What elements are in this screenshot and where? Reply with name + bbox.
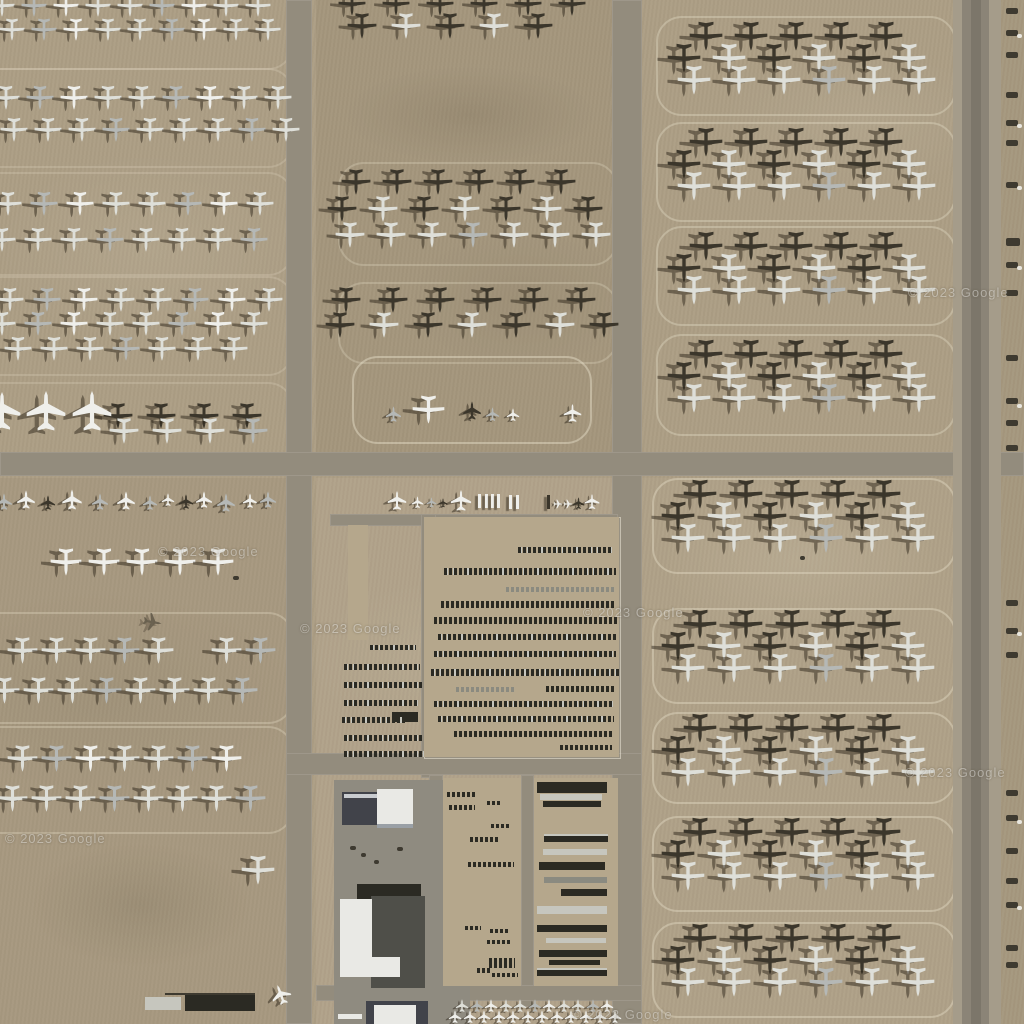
storage-row [454,731,614,737]
structure [539,862,605,870]
aircraft [506,408,520,422]
aircraft [61,489,83,511]
aircraft [230,82,258,110]
map-attribution-watermark: © 2023 Google [572,1007,673,1022]
aircraft [767,61,801,95]
structure [338,1014,362,1019]
structure [549,960,600,965]
aircraft [901,963,935,997]
aircraft [0,114,28,142]
aircraft [671,519,705,553]
aircraft [385,406,402,423]
aircraft [75,741,106,772]
aircraft [159,673,190,704]
aircraft [195,414,225,444]
aircraft [0,82,20,110]
aircraft [204,224,232,252]
aircraft [387,491,407,511]
aircraft [763,963,797,997]
aircraft [435,9,465,39]
aircraft [210,188,238,216]
aircraft [722,61,756,95]
aircraft [240,308,268,336]
structure [145,997,181,1010]
aircraft [535,1010,549,1024]
aircraft [50,544,82,576]
aircraft [195,491,213,509]
ground-object [1006,355,1018,361]
helicopter [516,495,519,509]
aircraft [242,493,258,509]
aircraft [563,404,582,423]
aircraft [133,781,164,812]
aircraft [211,633,242,664]
aircraft [152,414,182,444]
aircraft-body [0,392,20,430]
structure [374,1005,416,1024]
aircraft [127,15,153,41]
aircraft [7,741,38,772]
aircraft [95,15,121,41]
aircraft [902,167,936,201]
aircraft [523,9,553,39]
aircraft [763,753,797,787]
aircraft [812,271,846,305]
aircraft [902,61,936,95]
aircraft [0,673,20,704]
aircraft [722,379,756,413]
aircraft-body [585,494,600,509]
aircraft [99,781,130,812]
structure [561,889,607,896]
road [971,0,981,1024]
ground-object [1006,945,1018,951]
helicopter [478,494,481,508]
aircraft [23,673,54,704]
aircraft [270,984,292,1006]
aircraft [132,308,160,336]
aircraft [412,391,445,424]
aircraft [492,1010,506,1024]
storage-row [456,687,514,692]
aircraft [63,15,89,41]
structure [537,906,607,914]
map-attribution-watermark: © 2023 Google [158,544,259,559]
aircraft [238,414,268,444]
aircraft [0,224,16,252]
aircraft [191,15,217,41]
aircraft [809,519,843,553]
aircraft [272,114,300,142]
aircraft [589,308,619,338]
storage-row [344,682,422,688]
aircraft [40,333,68,361]
aircraft [235,781,266,812]
aircraft [369,308,399,338]
aircraft-body [451,490,471,511]
aircraft [245,633,276,664]
ground-object [1017,906,1022,910]
aircraft [763,857,797,891]
aircraft [521,1010,535,1024]
structure [537,925,607,932]
ground-object [1006,238,1020,246]
ground-object [374,860,379,864]
aircraft [857,379,891,413]
aircraft [462,401,482,421]
aircraft [671,857,705,891]
taxiway-outline [352,356,592,444]
aircraft [96,308,124,336]
aircraft [505,165,535,195]
aircraft [857,61,891,95]
aircraft [413,308,443,338]
aircraft [60,224,88,252]
aircraft [901,649,935,683]
aircraft-body [73,391,112,430]
aircraft [857,271,891,305]
structure [377,824,413,828]
storage-row [560,745,612,750]
helicopter [485,494,488,508]
aircraft [184,333,212,361]
aircraft [457,308,487,338]
aircraft [65,781,96,812]
road [286,0,312,1024]
aircraft [0,781,28,812]
ground-object [1006,140,1018,146]
aircraft [809,857,843,891]
aircraft [71,391,113,433]
aircraft [763,649,797,683]
aircraft [0,188,22,216]
structure [377,789,413,828]
aircraft [717,753,751,787]
aircraft [671,649,705,683]
aircraft [60,82,88,110]
structure [543,801,601,807]
aircraft [677,167,711,201]
aircraft [91,673,122,704]
aircraft [125,673,156,704]
aircraft [167,781,198,812]
aircraft [196,82,224,110]
map-attribution-watermark: © 2023 Google [5,831,106,846]
aircraft [16,490,36,510]
aircraft [161,493,175,507]
aircraft [4,333,32,361]
ground-object [1017,124,1022,128]
aircraft [677,61,711,95]
aircraft [677,271,711,305]
aircraft [102,114,130,142]
aircraft [857,167,891,201]
aircraft [581,218,611,248]
aircraft [722,271,756,305]
aircraft [812,167,846,201]
aircraft-body [388,491,406,510]
aircraft [809,649,843,683]
aircraft [902,379,936,413]
aircraft [31,15,57,41]
aircraft [238,114,266,142]
aircraft [246,188,274,216]
aircraft [477,1010,491,1024]
storage-row [438,634,616,640]
aircraft [558,0,586,16]
aircraft [41,633,72,664]
aircraft [211,741,242,772]
aircraft [855,963,889,997]
storage-row [477,968,491,973]
aircraft [450,490,472,512]
helicopter [547,495,550,509]
storage-row [449,805,475,810]
aircraft [132,224,160,252]
ground-object [1017,266,1022,270]
ground-object [1006,52,1018,58]
aircraft [159,15,185,41]
aircraft [128,82,156,110]
ground-object [1006,848,1018,854]
helicopter [491,494,494,508]
aircraft [812,379,846,413]
aircraft [204,308,232,336]
aircraft [143,741,174,772]
satellite-map[interactable]: © 2023 Google© 2023 Google© 2023 Google©… [0,0,1024,1024]
aircraft [767,271,801,305]
ground-object [1017,820,1022,824]
aircraft [30,188,58,216]
storage-row [444,568,616,575]
aircraft [550,1010,564,1024]
ground-object [1006,878,1018,884]
aircraft [31,781,62,812]
storage-row [487,801,501,805]
aircraft [143,633,174,664]
aircraft [240,224,268,252]
aircraft [347,9,377,39]
aircraft [204,114,232,142]
aircraft [376,218,406,248]
aircraft [57,673,88,704]
aircraft [170,114,198,142]
helicopter [509,495,512,509]
structure [544,834,608,836]
road [521,775,534,1007]
aircraft [142,612,162,632]
storage-row [344,700,418,706]
aircraft [216,493,236,513]
storage-row [491,824,509,828]
aircraft [717,519,751,553]
aircraft [177,741,208,772]
ground-object [1006,445,1018,451]
storage-row [431,669,619,676]
aircraft [411,496,424,509]
storage-row [344,664,420,670]
storage-row [434,651,616,657]
aircraft [901,857,935,891]
aircraft [855,649,889,683]
aircraft [7,633,38,664]
storage-row [344,735,422,741]
storage-row [518,547,612,553]
aircraft [174,188,202,216]
aircraft [24,308,52,336]
aircraft [136,114,164,142]
aircraft [76,333,104,361]
aircraft [499,218,529,248]
storage-row [370,645,416,650]
storage-row [434,701,614,707]
storage-row [465,926,481,930]
ground-object [1006,92,1018,98]
ground-object [1017,186,1022,190]
aircraft [671,963,705,997]
aircraft [259,491,277,509]
structure [539,950,607,957]
ground-object [350,846,356,850]
aircraft [68,114,96,142]
aircraft [855,857,889,891]
aircraft-body [563,404,580,422]
aircraft [220,333,248,361]
aircraft [66,188,94,216]
aircraft [901,519,935,553]
aircraft [438,498,448,508]
structure [165,993,255,995]
storage-row [487,940,511,944]
aircraft [34,114,62,142]
aircraft [26,82,54,110]
aircraft [546,165,576,195]
aircraft [335,218,365,248]
ground-object [1006,815,1018,821]
ground-object [1006,420,1018,426]
storage-row [344,751,424,757]
aircraft [138,188,166,216]
ground-object [1006,652,1018,658]
aircraft [855,519,889,553]
aircraft [75,633,106,664]
aircraft [91,493,109,511]
aircraft [809,753,843,787]
aircraft [553,499,563,509]
storage-row [438,716,614,722]
storage-row [342,717,406,723]
structure [544,877,607,883]
aircraft [325,308,355,338]
structure [340,957,400,977]
aircraft [855,753,889,787]
aircraft [40,495,56,511]
aircraft [264,82,292,110]
structure [543,849,607,855]
aircraft-body [268,982,293,1007]
aircraft [479,9,509,39]
ground-object [397,847,403,851]
aircraft [382,165,412,195]
aircraft [60,308,88,336]
aircraft [94,82,122,110]
ground-object [1006,398,1018,404]
aircraft [717,649,751,683]
aircraft [193,673,224,704]
storage-row [546,686,616,692]
aircraft [767,167,801,201]
ground-object [361,853,366,857]
aircraft [255,15,281,41]
aircraft [545,308,575,338]
ground-object [1006,790,1018,796]
aircraft [162,82,190,110]
aircraft [112,333,140,361]
storage-row [468,862,514,867]
aircraft [464,165,494,195]
aircraft [809,963,843,997]
aircraft [168,308,196,336]
aircraft [25,391,67,433]
aircraft [96,224,124,252]
structure [185,995,255,1011]
aircraft-body [0,493,12,509]
aircraft [540,218,570,248]
ground-object [1017,404,1022,408]
aircraft [763,519,797,553]
ground-object [233,576,239,580]
aircraft-body [27,391,66,430]
aircraft [458,218,488,248]
aircraft [0,493,13,511]
aircraft [109,633,140,664]
aircraft [142,495,158,511]
desert-tint [1001,0,1024,1024]
aircraft [717,963,751,997]
aircraft [717,857,751,891]
aircraft [148,333,176,361]
aircraft [126,544,158,576]
aircraft [168,224,196,252]
aircraft [201,781,232,812]
aircraft [417,218,447,248]
aircraft [0,308,16,336]
aircraft [423,165,453,195]
map-attribution-watermark: © 2023 Google [905,765,1006,780]
storage-row [492,973,518,977]
structure [546,938,606,943]
aircraft [812,61,846,95]
ground-object [1006,600,1018,606]
aircraft-body [0,228,15,252]
ground-object [1017,34,1022,38]
map-attribution-watermark: © 2023 Google [908,285,1009,300]
aircraft [485,407,500,422]
aircraft [463,1010,477,1024]
storage-row [506,587,614,592]
aircraft [241,851,275,885]
ground-object [1017,632,1022,636]
aircraft [722,167,756,201]
aircraft [501,308,531,338]
map-attribution-watermark: © 2023 Google [583,605,684,620]
aircraft [178,494,194,510]
ground-object [1006,8,1018,14]
road [0,452,1024,476]
helicopter [497,494,500,508]
ground-object [1006,962,1018,968]
storage-row [447,792,477,797]
